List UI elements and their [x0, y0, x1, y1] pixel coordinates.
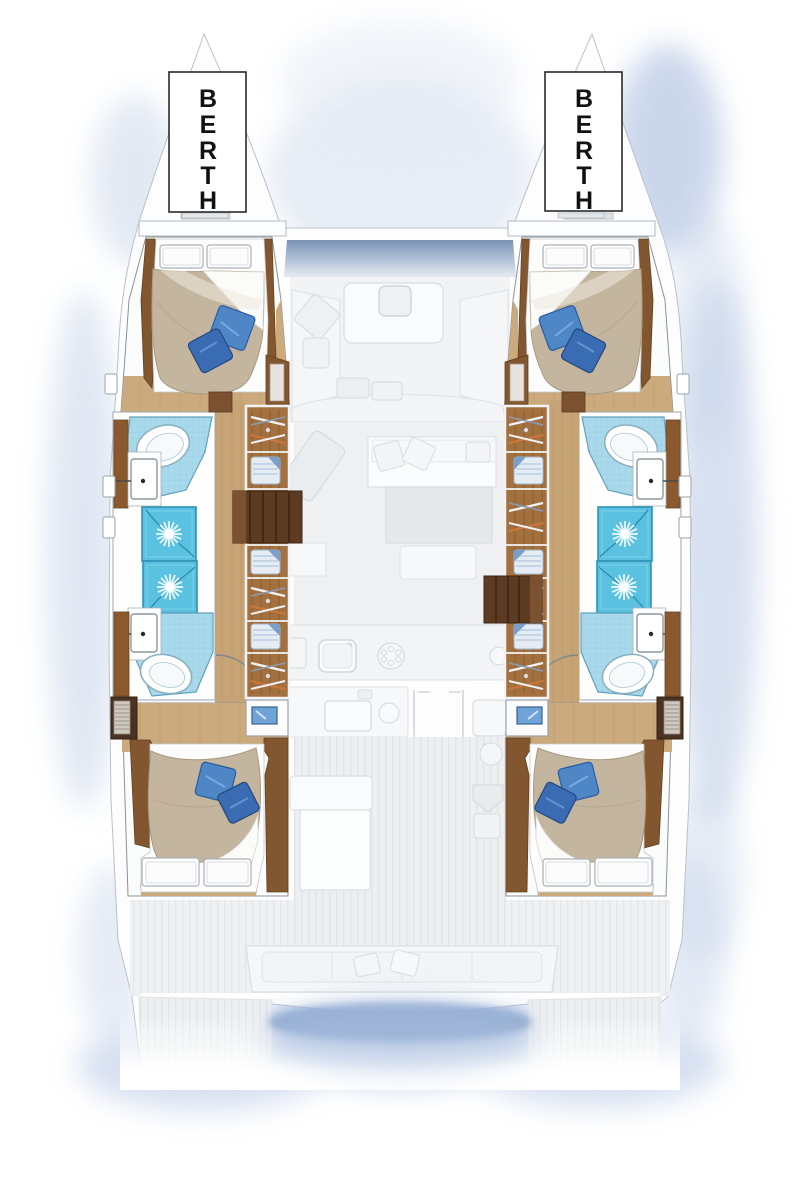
- svg-text:H: H: [575, 187, 593, 215]
- svg-text:T: T: [576, 162, 591, 190]
- svg-text:H: H: [199, 187, 217, 215]
- svg-text:E: E: [576, 111, 593, 139]
- svg-text:R: R: [575, 137, 593, 165]
- svg-text:R: R: [199, 137, 217, 165]
- svg-text:E: E: [200, 111, 217, 139]
- svg-text:T: T: [200, 162, 215, 190]
- svg-text:B: B: [199, 85, 217, 113]
- svg-text:B: B: [575, 85, 593, 113]
